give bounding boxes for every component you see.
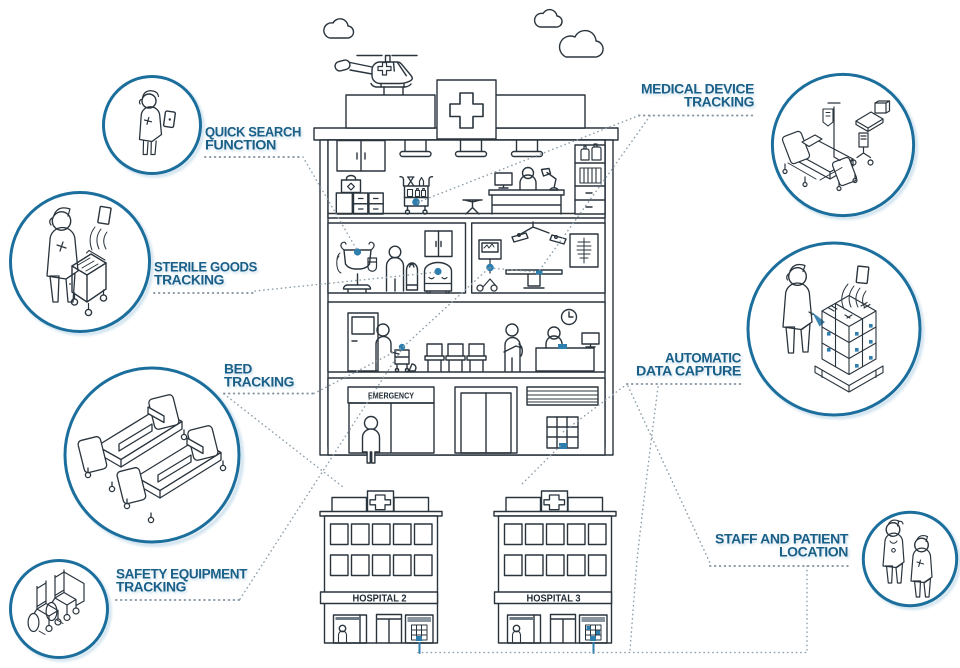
svg-text:HOSPITAL 3: HOSPITAL 3 [527, 594, 582, 605]
svg-text:FUNCTION: FUNCTION [205, 138, 276, 154]
svg-text:TRACKING: TRACKING [154, 273, 224, 289]
svg-text:TRACKING: TRACKING [224, 375, 294, 391]
svg-text:HOSPITAL 2: HOSPITAL 2 [353, 594, 408, 605]
svg-text:LOCATION: LOCATION [779, 545, 848, 561]
svg-text:TRACKING: TRACKING [116, 580, 186, 596]
svg-text:EMERGENCY: EMERGENCY [368, 392, 414, 401]
svg-text:DATA CAPTURE: DATA CAPTURE [636, 364, 741, 380]
svg-text:TRACKING: TRACKING [684, 95, 754, 111]
